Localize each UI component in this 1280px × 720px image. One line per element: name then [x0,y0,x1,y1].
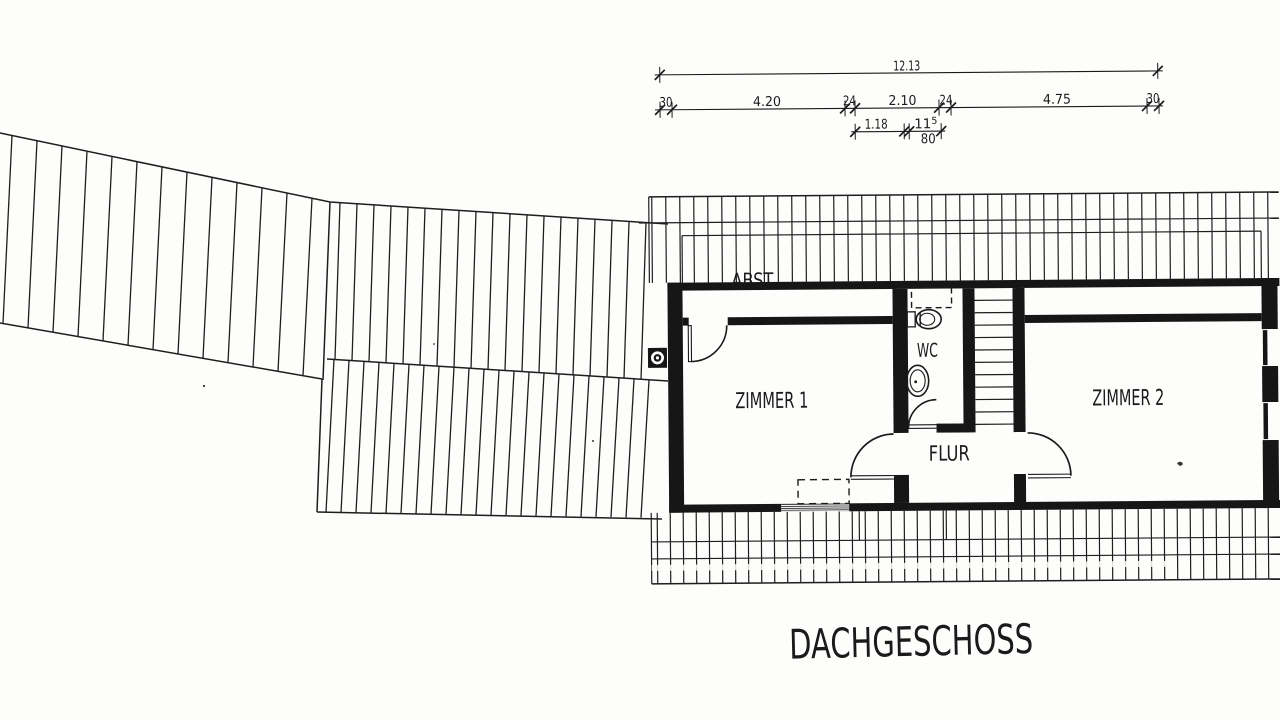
neighbor-roof-hatch [0,133,668,519]
wall-wc-south-stub [937,423,964,432]
dim-seg-5: 4.75 [1043,92,1071,108]
dim-seg-3: 2.10 [888,93,916,109]
room-label-zimmer1: ZIMMER 1 [735,389,808,415]
wall-stair-west [962,288,975,432]
roof-panel-outlines [0,133,668,519]
dashed-ceiling-outline-flur [798,479,849,503]
room-labels: ABST ZIMMER 1 ZIMMER 2 WC FLUR [731,265,1165,467]
chimney-icon [648,348,667,368]
roof-panel-a-hatch [3,136,312,376]
floorplan-page: ABST ZIMMER 1 ZIMMER 2 WC FLUR 12.13 30 … [0,0,1280,720]
floorplan-drawing: ABST ZIMMER 1 ZIMMER 2 WC FLUR 12.13 30 … [0,0,1280,720]
wall-flur-east [1014,474,1026,502]
dim-seg-4: 24 [939,93,952,109]
dim-seg-0: 30 [659,95,672,111]
staircase [975,300,1014,424]
dim-sub-c-label: 80 [921,131,936,147]
dim-sub-b-main: 11 [914,116,931,132]
roof-panel-b-hatch [335,203,646,380]
dim-seg-2: 24 [843,93,856,109]
dim-seg-1: 4.20 [753,94,781,110]
wall-wc-west [892,289,908,433]
wall-flur-west [894,475,909,503]
wall-zimmer1-north [728,316,893,325]
wall-south [669,500,1280,513]
wall-west [667,283,684,513]
sink-icon [907,365,929,396]
dim-seg-6: 30 [1146,91,1159,107]
room-label-flur: FLUR [929,441,970,465]
scan-white-streak [652,561,1167,571]
wall-stair-east [1012,288,1025,432]
wall-east [1261,278,1277,329]
dim-sub-b-label: 115 [914,116,937,133]
room-label-wc: WC [917,340,938,362]
dim-total-label: 12.13 [893,58,920,74]
dashed-ceiling-outline-wc [911,288,951,308]
dim-sub-b-sup: 5 [931,116,937,127]
drawing-title: DACHGESCHOSS [789,615,1034,669]
window-east-2 [1263,403,1268,439]
wall-east [1263,440,1280,508]
room-label-zimmer2: ZIMMER 2 [1092,386,1164,412]
window-east-1 [1263,330,1268,365]
dim-sub-a-label: 1.18 [865,117,888,133]
wall-zimmer2-north [1025,313,1262,323]
roof-band-bottom-hatch [657,508,1269,584]
roof-panel-c-hatch [326,359,649,517]
wall-east [1262,366,1278,402]
room-label-abst: ABST [731,268,774,292]
toilet-icon [907,310,941,329]
roof-band-bottom [651,508,1280,584]
